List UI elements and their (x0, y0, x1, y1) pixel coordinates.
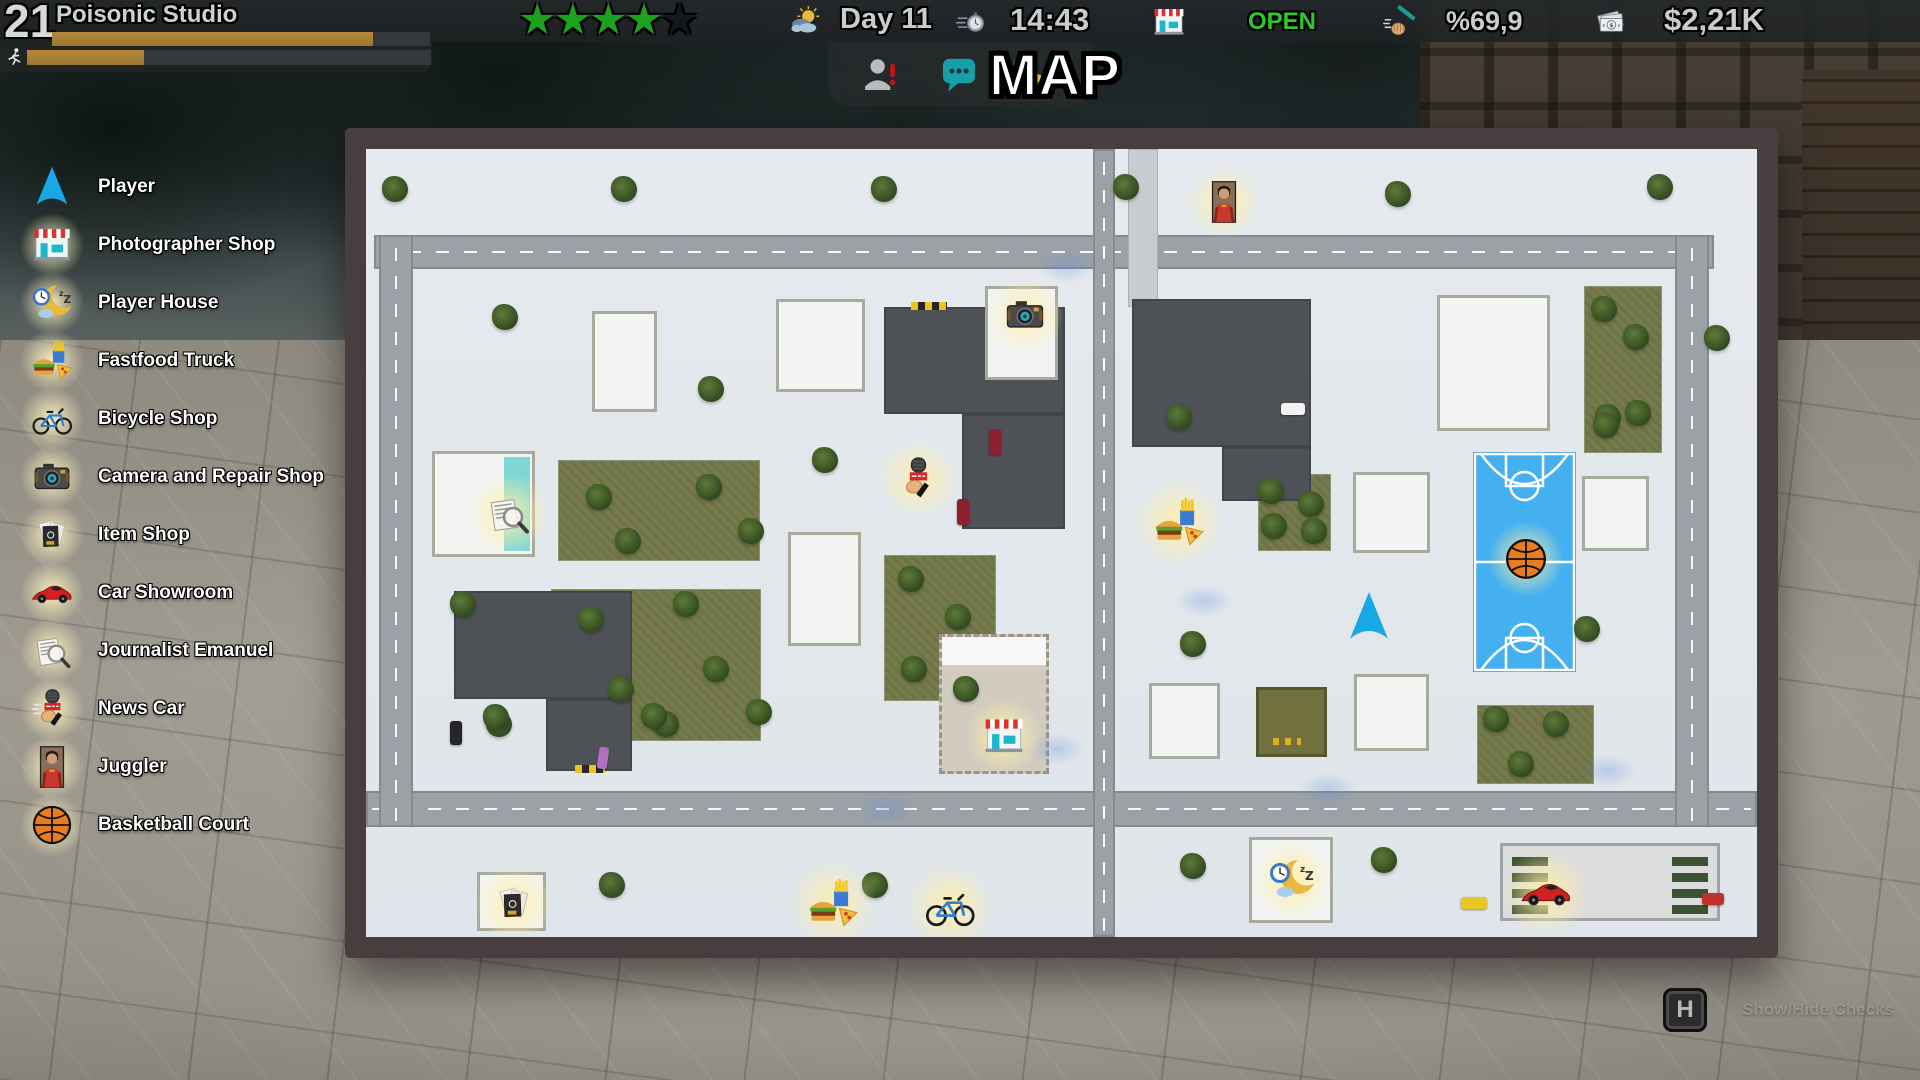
map-marker-sleep (1267, 855, 1317, 905)
tree (1261, 513, 1287, 539)
tree (1113, 174, 1139, 200)
legend-label: Photographer Shop (98, 234, 275, 256)
tree (1301, 518, 1327, 544)
tree (1180, 853, 1206, 879)
parked-car (989, 429, 1001, 455)
map-marker-bicycle (923, 880, 977, 934)
legend-label: Bicycle Shop (98, 408, 217, 430)
shop-status-icon (1150, 4, 1188, 40)
tree (483, 704, 509, 730)
legend-item-fastfood-truck: Fastfood Truck (28, 332, 324, 390)
stamina-progress-bar (27, 50, 431, 65)
photographer-shop-icon (28, 221, 76, 269)
juggler-icon (1202, 180, 1246, 224)
road-v (379, 235, 413, 827)
hotkey-h-badge: H (1663, 988, 1707, 1032)
studio-name: Poisonic Studio (56, 1, 237, 29)
npc-alert-icon[interactable] (860, 53, 902, 95)
star-icon: ★ (589, 0, 625, 44)
parked-car (1461, 897, 1487, 909)
legend-label: Player (98, 176, 155, 198)
fastfood-icon (1152, 496, 1206, 550)
building (592, 311, 657, 412)
tree (1623, 324, 1649, 350)
star-icon: ★ (554, 0, 590, 44)
tree (641, 703, 667, 729)
studio-rating: ★★★★★ (518, 0, 696, 44)
tree (1543, 711, 1569, 737)
legend-item-basketball-court: Basketball Court (28, 796, 324, 854)
tree (746, 699, 772, 725)
legend-item-item-shop: Item Shop (28, 506, 324, 564)
olive-building (1256, 687, 1327, 757)
tree (599, 872, 625, 898)
grass-patch (558, 460, 760, 561)
legend-item-player-house: Player House (28, 274, 324, 332)
mic-icon (894, 455, 942, 503)
legend-label: Item Shop (98, 524, 190, 546)
tree (1704, 325, 1730, 351)
tree (738, 518, 764, 544)
tree (1180, 631, 1206, 657)
building (788, 532, 861, 646)
crosswalk-hatch (911, 302, 947, 310)
tree (611, 176, 637, 202)
tree (901, 656, 927, 682)
map-inner (366, 149, 1757, 937)
legend-item-bicycle-shop: Bicycle Shop (28, 390, 324, 448)
legend-label: Player House (98, 292, 218, 314)
clock-time: 14:43 (1010, 2, 1089, 38)
tree (1508, 751, 1534, 777)
star-icon: ★ (660, 0, 696, 44)
level-progress-fill (52, 32, 373, 46)
parked-car (957, 499, 969, 525)
fastfood-truck-icon (28, 337, 76, 385)
map-marker-fastfood (1152, 496, 1206, 550)
paint-splotch (846, 786, 926, 832)
money-value: $2,21K (1664, 2, 1764, 38)
building (1437, 295, 1550, 431)
player-icon (28, 163, 76, 211)
cleanliness-value: %69,9 (1446, 6, 1523, 37)
tree (1298, 491, 1324, 517)
player-level: 21 (4, 0, 55, 48)
tree (1593, 412, 1619, 438)
parked-car (1702, 893, 1724, 905)
legend-item-news-car: News Car (28, 680, 324, 738)
journalist-icon (28, 627, 76, 675)
items-icon (490, 880, 538, 928)
map-marker-camera (1002, 292, 1048, 338)
map-marker-car (1519, 866, 1573, 920)
legend-label: News Car (98, 698, 185, 720)
legend-label: Juggler (98, 756, 167, 778)
shop-status: OPEN (1248, 8, 1316, 36)
parked-car (1281, 403, 1305, 415)
map-marker-basketball (1503, 536, 1549, 582)
parking-lot (546, 699, 632, 771)
basketball-icon (1503, 536, 1549, 582)
map-title: MAP (920, 42, 1190, 109)
paint-splotch (1288, 766, 1368, 812)
bicycle-shop-icon (28, 395, 76, 443)
map-marker-journalist (483, 489, 533, 539)
legend-item-player: Player (28, 158, 324, 216)
news-car-icon (28, 685, 76, 733)
day-counter: Day 11 (840, 3, 932, 36)
parking-lot (962, 414, 1065, 529)
hotkey-letter: H (1676, 996, 1693, 1024)
tree (1483, 706, 1509, 732)
legend-label: Fastfood Truck (98, 350, 234, 372)
tree (382, 176, 408, 202)
sleep-icon (1267, 855, 1317, 905)
legend-item-photographer-shop: Photographer Shop (28, 216, 324, 274)
legend-item-car-showroom: Car Showroom (28, 564, 324, 622)
tree (608, 676, 634, 702)
time-speed-icon (950, 6, 994, 38)
car-icon (1519, 866, 1573, 920)
road-h (366, 791, 1757, 827)
tree (1591, 296, 1617, 322)
tree (812, 447, 838, 473)
paint-splotch (1568, 748, 1648, 794)
camera-shop-icon (28, 453, 76, 501)
map-board (345, 128, 1778, 958)
show-hide-checks-hint: Show/Hide Checks (1742, 1000, 1894, 1020)
player-icon (1342, 590, 1396, 644)
basketball-icon (28, 801, 76, 849)
tree (1385, 181, 1411, 207)
map-legend: Player Photographer Shop Player House Fa… (28, 158, 324, 854)
tree (945, 604, 971, 630)
tree (615, 528, 641, 554)
building (776, 299, 865, 392)
item-shop-icon (28, 511, 76, 559)
fastfood-icon (806, 877, 860, 931)
legend-item-camera-repair-shop: Camera and Repair Shop (28, 448, 324, 506)
journalist-icon (483, 489, 533, 539)
building (1354, 674, 1429, 751)
map-marker-items (490, 880, 538, 928)
tree (1574, 616, 1600, 642)
tree (1625, 400, 1651, 426)
tree (871, 176, 897, 202)
building (1149, 683, 1220, 759)
money-icon (1580, 4, 1642, 40)
tree (696, 474, 722, 500)
road-v (1675, 235, 1709, 827)
parked-car (450, 721, 462, 745)
shop-icon (981, 713, 1027, 759)
tree (450, 591, 476, 617)
building (1353, 472, 1430, 553)
building (1582, 476, 1649, 551)
map-marker-fastfood (806, 877, 860, 931)
legend-label: Car Showroom (98, 582, 233, 604)
map-marker-player (1342, 590, 1396, 644)
tree (586, 484, 612, 510)
tree (1166, 404, 1192, 430)
parking-lot (454, 591, 632, 699)
level-progress-bar (52, 32, 430, 46)
weather-icon (780, 4, 828, 40)
paint-splotch (1164, 578, 1244, 624)
stamina-progress-fill (27, 50, 144, 65)
camera-icon (1002, 292, 1048, 338)
tree (1647, 174, 1673, 200)
car-showroom-icon (28, 569, 76, 617)
map-marker-mic (894, 455, 942, 503)
tree (492, 304, 518, 330)
legend-label: Camera and Repair Shop (98, 466, 324, 488)
tree (1371, 847, 1397, 873)
tree (673, 591, 699, 617)
legend-label: Journalist Emanuel (98, 640, 273, 662)
legend-item-juggler: Juggler (28, 738, 324, 796)
tree (1258, 478, 1284, 504)
walkway (1128, 149, 1158, 307)
cleanliness-icon (1376, 3, 1428, 41)
legend-item-journalist: Journalist Emanuel (28, 622, 324, 680)
map-marker-juggler (1202, 180, 1246, 224)
legend-label: Basketball Court (98, 814, 249, 836)
star-icon: ★ (518, 0, 554, 44)
tree (898, 566, 924, 592)
bicycle-icon (923, 880, 977, 934)
player-house-icon (28, 279, 76, 327)
tree (578, 606, 604, 632)
tree (698, 376, 724, 402)
star-icon: ★ (625, 0, 661, 44)
tree (703, 656, 729, 682)
parking-lot (1132, 299, 1311, 447)
map-marker-shop (981, 713, 1027, 759)
juggler-icon (28, 743, 76, 791)
runner-icon (4, 47, 24, 67)
